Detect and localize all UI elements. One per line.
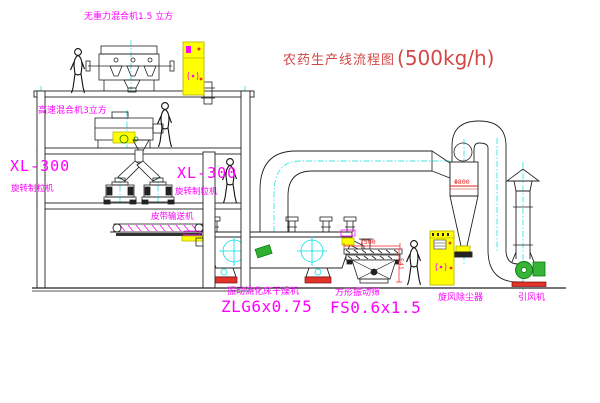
control-cabinet-upper: [183, 42, 204, 95]
cad-canvas: 农药生产线流程图 (500kg/h) 无重力混合机1.5 立方 高速混合机3立方…: [0, 0, 600, 403]
cyclone-separator-drawing: [450, 121, 524, 282]
drawing-title: 农药生产线流程图 (500kg/h): [283, 46, 495, 70]
label-sieve-name: 方形振动筛: [335, 289, 380, 298]
label-belt-conveyor: 皮带输送机: [151, 213, 194, 222]
label-cyclone-name: 旋风除尘器: [438, 294, 483, 303]
title-capacity: (500kg/h): [397, 46, 494, 70]
label-sieve-model: FS0.6x1.5: [330, 300, 421, 316]
label-mill-mid-model: XL-300: [177, 166, 237, 181]
label-no-gravity-mixer: 无重力混合机1.5 立方: [84, 13, 173, 22]
label-high-speed-mixer: 高速混合机3立方: [38, 107, 107, 116]
fluid-bed-dryer-drawing: [196, 217, 364, 283]
label-mill-mid-name: 旋转制粒机: [175, 188, 218, 197]
person-figure: [71, 49, 85, 93]
title-text: 农药生产线流程图: [283, 49, 395, 70]
label-fan-name: 引风机: [518, 294, 545, 303]
control-cabinet-lower: [430, 231, 454, 285]
dim-sieve-height: 541: [398, 258, 405, 270]
person-figure: [158, 103, 172, 147]
person-figure: [407, 241, 421, 285]
label-dryer-model: ZLG6x0.75: [221, 299, 312, 315]
high-speed-mixer-drawing: [95, 112, 163, 151]
belt-conveyor-drawing: [113, 224, 204, 241]
label-mill-left-name: 旋转制粒机: [11, 185, 54, 194]
label-mill-left-model: XL-300: [10, 159, 70, 174]
label-dryer-name: 振动流化床干燥机: [227, 288, 299, 297]
y-splitter-pipe: [118, 150, 160, 181]
fan-drawing: [512, 262, 546, 287]
dim-cyclone-diameter: Φ800: [454, 179, 470, 186]
dim-sieve-length: 1500: [360, 239, 376, 246]
